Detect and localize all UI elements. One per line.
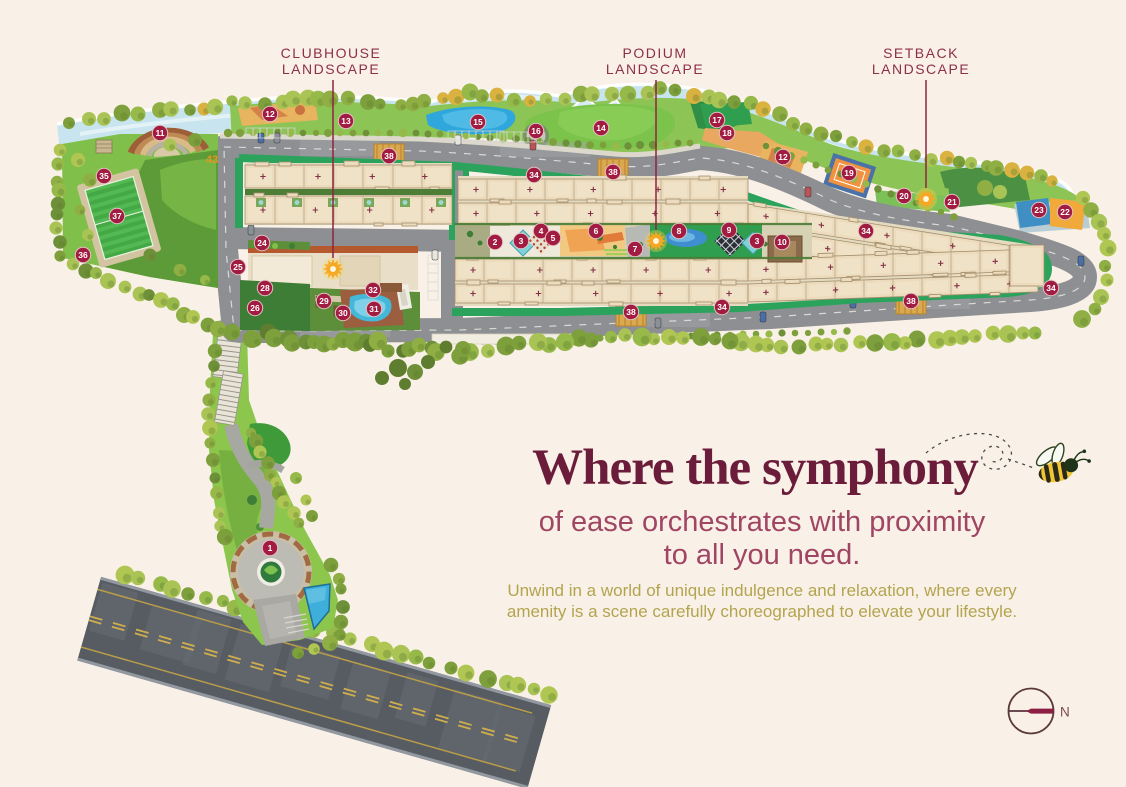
svg-text:23: 23 — [1034, 205, 1044, 215]
svg-text:25: 25 — [233, 262, 243, 272]
svg-text:12: 12 — [265, 109, 275, 119]
svg-text:13: 13 — [341, 116, 351, 126]
svg-text:14: 14 — [596, 123, 606, 133]
svg-text:34: 34 — [717, 302, 727, 312]
svg-text:LANDSCAPE: LANDSCAPE — [606, 61, 704, 77]
svg-text:11: 11 — [156, 128, 165, 138]
svg-text:31: 31 — [369, 304, 379, 314]
svg-text:18: 18 — [722, 128, 732, 138]
svg-text:9: 9 — [727, 225, 732, 235]
svg-text:22: 22 — [1060, 207, 1070, 217]
svg-text:12: 12 — [778, 152, 788, 162]
svg-text:43: 43 — [206, 154, 218, 166]
svg-text:24: 24 — [257, 238, 267, 248]
svg-text:Unwind in a world of unique in: Unwind in a world of unique indulgence a… — [507, 581, 1017, 600]
svg-text:34: 34 — [1046, 283, 1056, 293]
svg-text:N: N — [1060, 705, 1070, 720]
svg-text:38: 38 — [384, 151, 394, 161]
svg-text:20: 20 — [899, 191, 909, 201]
svg-text:37: 37 — [112, 211, 122, 221]
svg-text:35: 35 — [99, 171, 109, 181]
svg-text:34: 34 — [529, 170, 539, 180]
svg-text:19: 19 — [844, 168, 854, 178]
svg-text:Where the symphony: Where the symphony — [532, 440, 978, 496]
svg-text:38: 38 — [626, 307, 636, 317]
svg-text:29: 29 — [319, 296, 329, 306]
svg-text:2: 2 — [493, 237, 498, 247]
svg-text:LANDSCAPE: LANDSCAPE — [282, 61, 380, 77]
svg-text:10: 10 — [777, 237, 787, 247]
svg-text:38: 38 — [608, 167, 618, 177]
svg-text:5: 5 — [551, 233, 556, 243]
svg-text:8: 8 — [677, 226, 682, 236]
svg-text:SETBACK: SETBACK — [883, 45, 959, 61]
svg-text:36: 36 — [78, 250, 88, 260]
svg-text:7: 7 — [633, 244, 638, 254]
svg-text:to all you need.: to all you need. — [664, 539, 861, 571]
svg-text:34: 34 — [861, 226, 871, 236]
svg-text:38: 38 — [906, 296, 916, 306]
svg-text:amenity is a scene carefully c: amenity is a scene carefully choreograph… — [507, 602, 1017, 621]
svg-text:PODIUM: PODIUM — [623, 45, 688, 61]
svg-text:LANDSCAPE: LANDSCAPE — [872, 61, 970, 77]
svg-text:21: 21 — [947, 197, 957, 207]
svg-text:6: 6 — [594, 226, 599, 236]
svg-text:1: 1 — [268, 543, 273, 553]
svg-text:30: 30 — [338, 308, 348, 318]
svg-text:CLUBHOUSE: CLUBHOUSE — [281, 45, 382, 61]
svg-text:26: 26 — [250, 303, 260, 313]
svg-text:16: 16 — [531, 126, 541, 136]
svg-text:32: 32 — [368, 285, 378, 295]
svg-text:28: 28 — [260, 283, 270, 293]
svg-text:4: 4 — [539, 226, 544, 236]
svg-text:17: 17 — [712, 115, 722, 125]
svg-text:15: 15 — [473, 117, 483, 127]
svg-text:3: 3 — [519, 236, 524, 246]
svg-text:of ease orchestrates with prox: of ease orchestrates with proximity — [539, 506, 986, 538]
svg-text:3: 3 — [755, 236, 760, 246]
